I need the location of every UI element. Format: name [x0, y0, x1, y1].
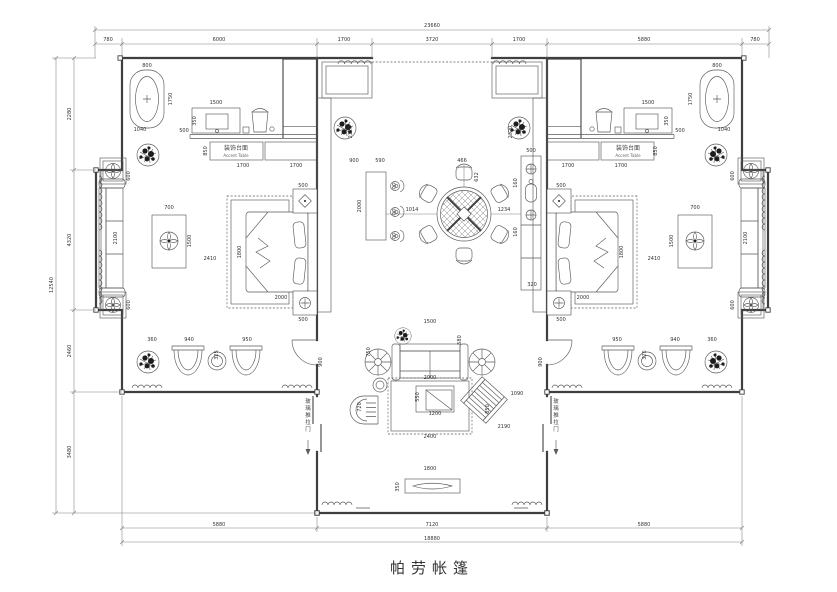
dimension-label: 160: [513, 227, 519, 237]
dimension-label: 1040: [134, 127, 147, 133]
dimension-label: 1700: [338, 37, 351, 43]
dimension-label: 2410: [648, 256, 661, 262]
dimension-label: 500: [526, 148, 536, 154]
dimension-label: 5880: [638, 522, 651, 528]
dimension-label: 2460: [67, 345, 73, 358]
dimension-label: 160: [513, 178, 519, 188]
plan-title: 帕劳帐篷: [390, 559, 474, 577]
dimension-label: 2000: [357, 200, 363, 213]
dimension-label: 1700: [562, 163, 575, 169]
dimension-label: 1700: [513, 37, 526, 43]
dimension-label: 1500: [642, 100, 655, 106]
dimension-label: 1800: [237, 246, 243, 259]
dimension-label: 500: [179, 128, 189, 134]
dimension-label: 900: [318, 357, 324, 367]
dimension-label: 1200: [429, 411, 442, 417]
dimension-label: 325: [642, 350, 648, 360]
dimension-label: 1500: [210, 100, 223, 106]
dimension-label: 350: [395, 482, 401, 492]
dimension-label: 350: [664, 116, 670, 126]
dimension-label: 700: [690, 205, 700, 211]
dimension-label: 1014: [406, 207, 419, 213]
dimension-label: 2320: [508, 126, 514, 139]
dimension-label: 720: [357, 402, 363, 412]
dimension-label: 2410: [204, 256, 217, 262]
dimension-label: 600: [730, 171, 736, 181]
dimension-label: 940: [670, 337, 680, 343]
dimension-label: 23660: [424, 23, 440, 29]
dimension-label: 850: [653, 146, 659, 156]
dining-table: [437, 187, 491, 241]
dimension-label: 550: [415, 392, 421, 402]
dimension-label: 1750: [168, 93, 174, 106]
dimension-label: 4320: [67, 234, 73, 247]
dimension-label: 3720: [426, 37, 439, 43]
small-round-table: [373, 378, 387, 392]
dimension-label: 2100: [743, 232, 749, 245]
dimension-label: 2100: [113, 232, 119, 245]
dimension-label: 1700: [290, 163, 303, 169]
dimension-label: 325: [214, 350, 220, 360]
dimension-label: 700: [164, 205, 174, 211]
dimension-label: 1750: [688, 93, 694, 106]
dimension-label: 1500: [187, 235, 193, 248]
dimension-label: 2000: [424, 375, 437, 381]
sliding-door-label-left: 玻璃推拉门: [305, 397, 311, 433]
accent-table-label-en-right: Accent Table: [615, 153, 641, 158]
dimension-label: 590: [375, 158, 385, 164]
dimension-label: 800: [142, 63, 152, 69]
dimension-label: 500: [298, 317, 308, 323]
dimension-label: 12540: [49, 277, 55, 293]
dimension-label: 500: [556, 183, 566, 189]
sliding-door-label-right: 玻璃推拉门: [553, 397, 559, 433]
dimension-label: 5880: [213, 522, 226, 528]
dimension-label: 940: [184, 337, 194, 343]
dimension-label: 2280: [67, 108, 73, 121]
dimension-label: 780: [750, 37, 760, 43]
dimension-label: 360: [147, 337, 157, 343]
living-coffee-table: [416, 386, 454, 412]
dimension-label: 1700: [237, 163, 250, 169]
dimension-label: 1090: [511, 391, 524, 397]
dimension-label: 5880: [638, 37, 651, 43]
dimension-label: 7120: [426, 522, 439, 528]
floor-plan-drawing: 2366078060001700372017005880780588071205…: [0, 0, 837, 592]
dimension-label: 2400: [424, 434, 437, 440]
dimension-label: 900: [538, 357, 544, 367]
dimension-label: 850: [203, 146, 209, 156]
dimension-label: 500: [675, 128, 685, 134]
accent-table-label-cn-right: 装饰台面: [616, 144, 640, 152]
dimension-label: 2000: [577, 295, 590, 301]
dimension-label: 750: [366, 347, 372, 357]
dimension-label: 466: [457, 158, 467, 164]
dimension-label: 1800: [619, 246, 625, 259]
dimension-label: 900: [349, 158, 359, 164]
dimension-label: 500: [556, 317, 566, 323]
dimension-label: 632: [474, 172, 480, 182]
dimension-label: 780: [103, 37, 113, 43]
dimension-label: 350: [192, 116, 198, 126]
dimension-label: 2190: [498, 424, 511, 430]
dimension-label: 1700: [615, 163, 628, 169]
dimension-label: 2000: [275, 295, 288, 301]
dimension-label: 580: [457, 335, 463, 345]
accent-table-label-cn-left: 装饰台面: [224, 144, 248, 152]
accent-table-label-en-left: Accent Table: [223, 153, 249, 158]
dimension-label: 950: [242, 337, 252, 343]
dimension-label: 600: [730, 300, 736, 310]
dimension-label: 1234: [498, 207, 511, 213]
dimension-label: 850: [485, 404, 491, 414]
dimension-label: 1040: [718, 127, 731, 133]
dimension-label: 500: [298, 183, 308, 189]
dimension-label: 1500: [669, 235, 675, 248]
dimension-label: 950: [612, 337, 622, 343]
dimension-label: 18880: [424, 536, 440, 542]
dimension-label: 6000: [213, 37, 226, 43]
sheet-background: [0, 0, 837, 592]
dimension-label: 3480: [67, 446, 73, 459]
dimension-label: 600: [126, 300, 132, 310]
dimension-label: 360: [707, 337, 717, 343]
dimension-label: 1500: [424, 319, 437, 325]
dimension-label: 600: [126, 171, 132, 181]
floor-plan-sheet: 2366078060001700372017005880780588071205…: [0, 0, 837, 592]
dimension-label: 800: [712, 63, 722, 69]
dimension-label: 1800: [424, 466, 437, 472]
dimension-label: 2320: [348, 126, 354, 139]
dimension-label: 320: [527, 282, 537, 288]
